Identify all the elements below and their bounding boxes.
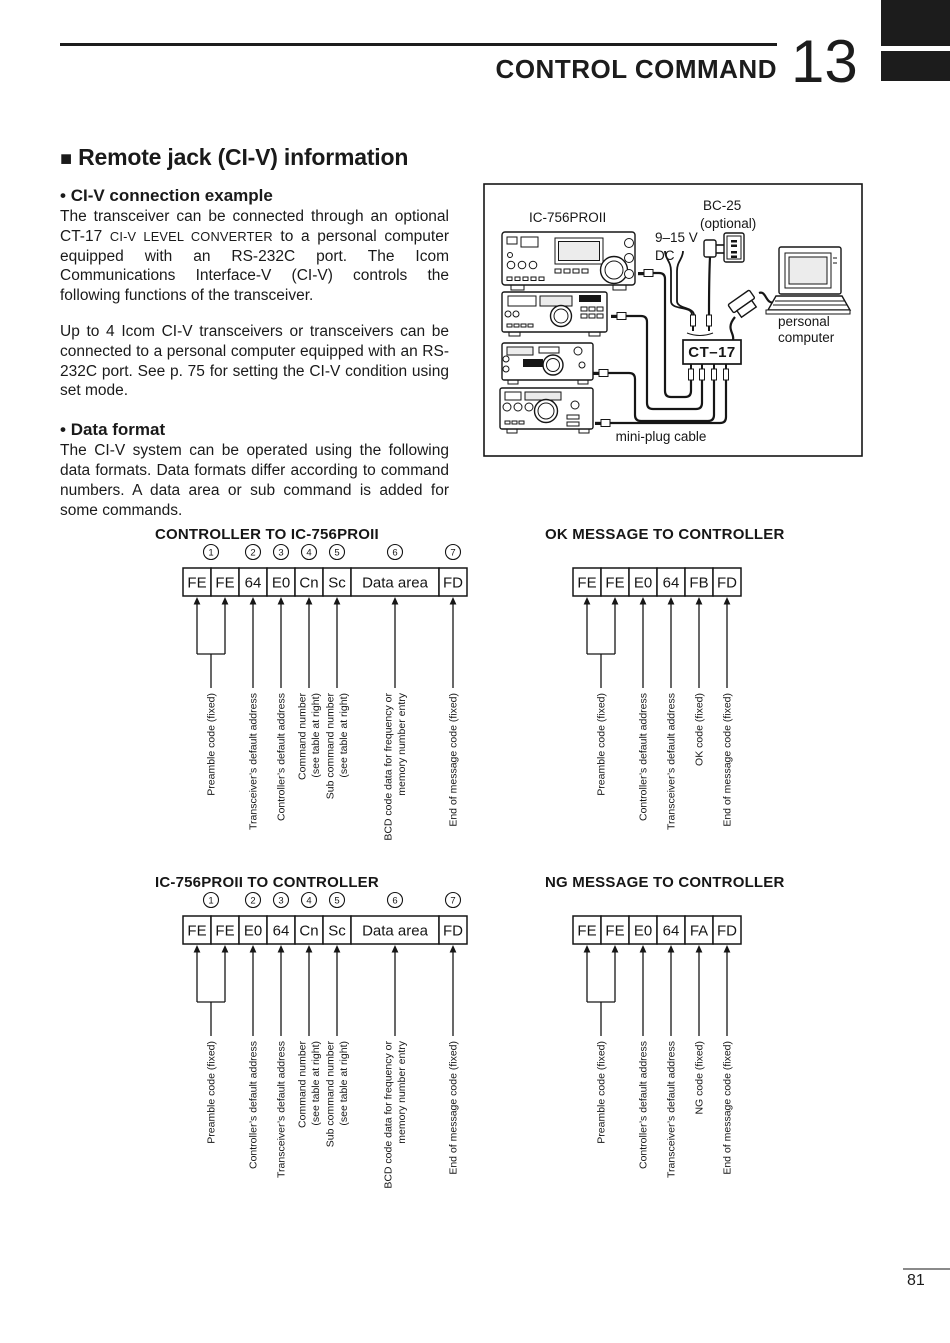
dc-power-cable: [665, 251, 696, 331]
cable-label: mini-plug cable: [616, 429, 707, 444]
byte-cell-value: FE: [577, 575, 596, 592]
body-paragraph: The CI-V system can be operated using th…: [60, 441, 449, 520]
format-diagram: OK MESSAGE TO CONTROLLERFEFEE064FBFDPrea…: [545, 526, 875, 871]
callout-label: OK code (fixed): [694, 693, 706, 766]
callout-label: End of message code (fixed): [722, 693, 734, 827]
circled-number-value: 2: [250, 548, 255, 559]
callout-label: (see table at right): [338, 693, 350, 778]
byte-cell-value: FA: [690, 923, 708, 940]
byte-cell-value: E0: [634, 575, 652, 592]
text-column: ■ Remote jack (CI-V) information • CI-V …: [60, 143, 449, 520]
byte-cell-value: FE: [215, 575, 234, 592]
callout-label: End of message code (fixed): [448, 1041, 460, 1175]
callout-label: Command number: [297, 1040, 309, 1127]
byte-cell-value: 64: [245, 575, 262, 592]
callout-label: Transceiver’s default address: [666, 693, 678, 830]
section-title: ■ Remote jack (CI-V) information: [60, 143, 449, 173]
byte-cell-value: FE: [187, 923, 206, 940]
connection-diagram: CT–17 IC-756PROII 9–15 V DC BC-25 (: [483, 183, 863, 458]
bullet-icon: •: [60, 186, 66, 205]
byte-cell-value: FD: [717, 575, 737, 592]
byte-cell-value: E0: [272, 575, 290, 592]
byte-cell-value: FE: [605, 575, 624, 592]
transceiver-2-illustration: [502, 292, 607, 336]
section-title-text: Remote jack (CI-V) information: [78, 144, 408, 170]
callout-label: Preamble code (fixed): [596, 693, 608, 796]
byte-cell-value: Data area: [362, 575, 429, 592]
byte-cell-value: 64: [663, 575, 680, 592]
circled-number-value: 1: [208, 548, 213, 559]
byte-cell-value: Data area: [362, 923, 429, 940]
byte-cell-value: FE: [187, 575, 206, 592]
callout-label: Sub command number: [325, 1041, 337, 1148]
chapter-tab-bar-bottom: [881, 51, 950, 81]
format-diagram-title: CONTROLLER TO IC-756PROII: [155, 526, 379, 543]
circled-number-value: 3: [278, 896, 283, 907]
byte-cell-value: Cn: [299, 923, 318, 940]
circled-number-value: 4: [306, 896, 311, 907]
body-paragraph: The transceiver can be connected through…: [60, 207, 449, 306]
byte-cell-value: FD: [443, 923, 463, 940]
circled-number-value: 6: [392, 548, 397, 559]
format-diagram-title: OK MESSAGE TO CONTROLLER: [545, 526, 785, 543]
brace-icon: [687, 333, 713, 336]
callout-label: End of message code (fixed): [722, 1041, 734, 1175]
callout-label: Command number: [297, 692, 309, 779]
chapter-tab-bar-top: [881, 0, 950, 46]
byte-cell-value: FE: [605, 923, 624, 940]
byte-cell-value: 64: [663, 923, 680, 940]
callout-label: BCD code data for frequency or: [383, 1041, 395, 1189]
byte-cell-value: FD: [443, 575, 463, 592]
manual-page: CONTROL COMMAND 13 ■ Remote jack (CI-V) …: [0, 0, 950, 1343]
callout-label: (see table at right): [338, 1041, 350, 1126]
callout-label: (see table at right): [310, 1041, 322, 1126]
transceiver-model-label: IC-756PROII: [529, 210, 606, 225]
byte-cell-value: FE: [215, 923, 234, 940]
format-diagram: CONTROLLER TO IC-756PROIIFEFE64E0CnScDat…: [155, 526, 485, 871]
transceiver-4-illustration: [500, 388, 593, 433]
circled-number-value: 5: [334, 548, 339, 559]
serial-cable-connectors: [728, 290, 776, 340]
callout-label: Preamble code (fixed): [206, 1041, 218, 1144]
byte-cell-value: 64: [273, 923, 290, 940]
computer-illustration: [766, 247, 850, 314]
circled-number-value: 4: [306, 548, 311, 559]
callout-label: Sub command number: [325, 693, 337, 800]
computer-label-line2: computer: [778, 330, 835, 345]
ct17-box: CT–17: [683, 340, 741, 364]
circled-number-value: 6: [392, 896, 397, 907]
byte-cell-value: FE: [577, 923, 596, 940]
power-label-line1: 9–15 V: [655, 230, 698, 245]
section-marker-icon: ■: [60, 148, 72, 170]
format-diagram: IC-756PROII TO CONTROLLERFEFEE064CnScDat…: [155, 874, 485, 1219]
smallcaps-term: CI-V LEVEL CONVERTER: [110, 229, 273, 244]
ct17-label: CT–17: [688, 344, 736, 361]
circled-number-value: 7: [450, 896, 455, 907]
bc25-label-line2: (optional): [700, 216, 756, 231]
chapter-title: CONTROL COMMAND: [400, 54, 777, 85]
byte-cell-value: Sc: [328, 575, 346, 592]
byte-cell-value: FB: [689, 575, 708, 592]
circled-number-value: 7: [450, 548, 455, 559]
callout-label: Transceiver’s default address: [666, 1041, 678, 1178]
byte-cell-value: E0: [634, 923, 652, 940]
header-rule: [60, 43, 777, 46]
body-paragraph: Up to 4 Icom CI-V transceivers or transc…: [60, 322, 449, 401]
bc25-adapter-and-outlet: [704, 233, 744, 331]
footer-rule: [903, 1268, 950, 1270]
callout-label: End of message code (fixed): [448, 693, 460, 827]
callout-label: Controller’s default address: [276, 693, 288, 821]
callout-label: Preamble code (fixed): [596, 1041, 608, 1144]
byte-cell-value: FD: [717, 923, 737, 940]
callout-label: Transceiver’s default address: [248, 693, 260, 830]
callout-label: BCD code data for frequency or: [383, 693, 395, 841]
byte-cell-value: Cn: [299, 575, 318, 592]
bullet-icon: •: [60, 420, 66, 439]
byte-cell-value: E0: [244, 923, 262, 940]
format-diagram-title: IC-756PROII TO CONTROLLER: [155, 874, 379, 891]
callout-label: memory number entry: [396, 692, 408, 795]
callout-label: memory number entry: [396, 1040, 408, 1143]
bc25-label-line1: BC-25: [703, 198, 741, 213]
byte-cell-value: Sc: [328, 923, 346, 940]
callout-label: (see table at right): [310, 693, 322, 778]
circled-number-value: 3: [278, 548, 283, 559]
transceiver-1-illustration: [502, 232, 635, 290]
subsection-title-connection-example: • CI-V connection example: [60, 186, 449, 206]
circled-number-value: 5: [334, 896, 339, 907]
callout-label: Transceiver’s default address: [276, 1041, 288, 1178]
format-diagram-title: NG MESSAGE TO CONTROLLER: [545, 874, 785, 891]
subsection-title-data-format: • Data format: [60, 420, 449, 440]
page-number: 81: [907, 1272, 925, 1290]
power-label-line2: DC: [655, 248, 675, 263]
callout-label: NG code (fixed): [694, 1041, 706, 1115]
transceiver-3-illustration: [502, 343, 593, 384]
circled-number-value: 2: [250, 896, 255, 907]
callout-label: Controller’s default address: [638, 693, 650, 821]
circled-number-value: 1: [208, 896, 213, 907]
computer-label-line1: personal: [778, 314, 830, 329]
callout-label: Controller’s default address: [638, 1041, 650, 1169]
callout-label: Controller’s default address: [248, 1041, 260, 1169]
callout-label: Preamble code (fixed): [206, 693, 218, 796]
chapter-number: 13: [791, 32, 858, 92]
format-diagram: NG MESSAGE TO CONTROLLERFEFEE064FAFDPrea…: [545, 874, 875, 1219]
